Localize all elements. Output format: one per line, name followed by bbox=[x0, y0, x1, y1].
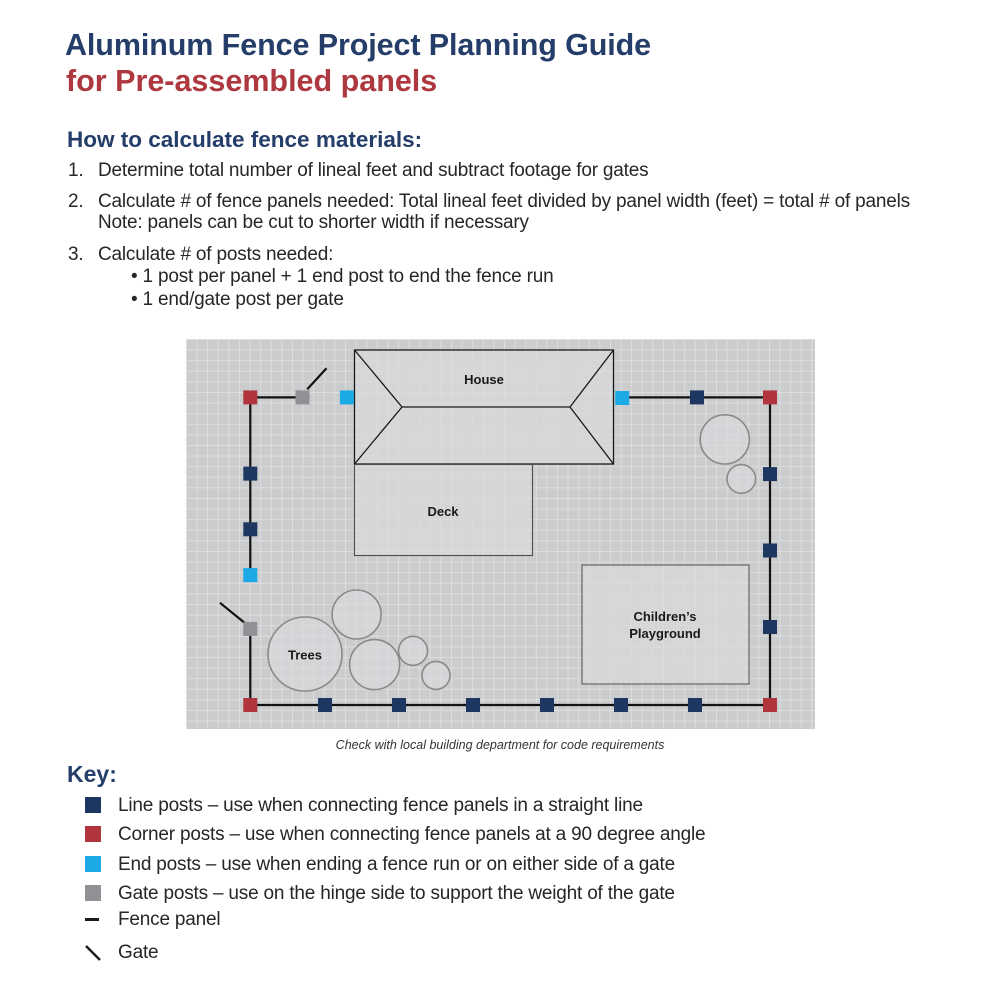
svg-text:Trees: Trees bbox=[288, 648, 322, 663]
svg-text:Playground: Playground bbox=[629, 626, 701, 641]
svg-text:Deck: Deck bbox=[427, 504, 459, 519]
svg-text:House: House bbox=[464, 372, 504, 387]
svg-text:Children’s: Children’s bbox=[633, 609, 696, 624]
